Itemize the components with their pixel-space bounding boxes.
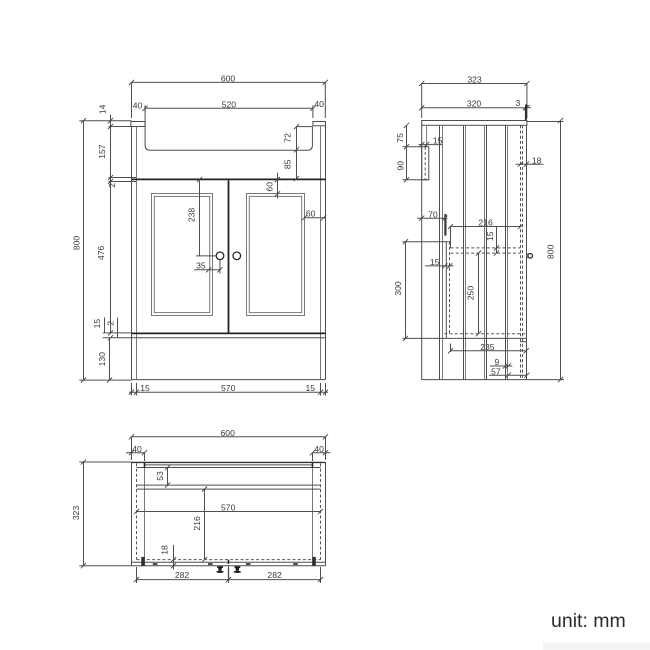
svg-text:90: 90 [395, 161, 405, 171]
svg-text:18: 18 [160, 545, 170, 555]
svg-text:800: 800 [72, 236, 82, 251]
svg-text:15: 15 [92, 319, 102, 329]
svg-text:85: 85 [283, 159, 293, 169]
svg-text:130: 130 [97, 352, 107, 367]
svg-text:40: 40 [314, 444, 324, 454]
svg-text:15: 15 [140, 383, 150, 393]
svg-text:57: 57 [491, 366, 501, 376]
svg-text:60: 60 [306, 209, 316, 219]
svg-text:75: 75 [395, 133, 405, 143]
svg-text:216: 216 [478, 218, 493, 228]
svg-text:72: 72 [283, 133, 293, 143]
svg-text:2: 2 [107, 183, 117, 188]
svg-text:476: 476 [96, 246, 106, 261]
svg-text:320: 320 [467, 99, 482, 109]
svg-text:15: 15 [485, 231, 495, 241]
svg-text:14: 14 [98, 104, 108, 114]
svg-text:235: 235 [480, 342, 495, 352]
svg-text:15: 15 [430, 257, 440, 267]
svg-text:15: 15 [306, 383, 316, 393]
svg-text:520: 520 [222, 99, 237, 109]
svg-text:unit: mm: unit: mm [551, 610, 626, 632]
svg-text:250: 250 [466, 286, 476, 301]
svg-text:282: 282 [267, 570, 282, 580]
svg-text:600: 600 [221, 73, 236, 83]
svg-text:15: 15 [433, 136, 443, 146]
svg-text:600: 600 [221, 428, 236, 438]
svg-text:800: 800 [545, 244, 555, 259]
svg-text:18: 18 [532, 155, 542, 165]
svg-text:3: 3 [516, 98, 521, 108]
svg-text:40: 40 [314, 99, 324, 109]
svg-text:216: 216 [192, 516, 202, 531]
svg-text:2: 2 [106, 321, 116, 326]
svg-text:40: 40 [132, 444, 142, 454]
svg-text:282: 282 [175, 570, 190, 580]
svg-text:323: 323 [467, 75, 482, 85]
svg-text:570: 570 [221, 503, 236, 513]
svg-text:300: 300 [393, 281, 403, 296]
svg-text:570: 570 [221, 383, 236, 393]
svg-text:70: 70 [428, 209, 438, 219]
svg-text:238: 238 [186, 208, 196, 223]
svg-text:53: 53 [155, 471, 165, 481]
svg-text:157: 157 [97, 144, 107, 159]
svg-text:323: 323 [71, 506, 81, 521]
svg-text:60: 60 [265, 182, 275, 192]
svg-text:35: 35 [196, 261, 206, 271]
svg-text:40: 40 [133, 101, 143, 111]
